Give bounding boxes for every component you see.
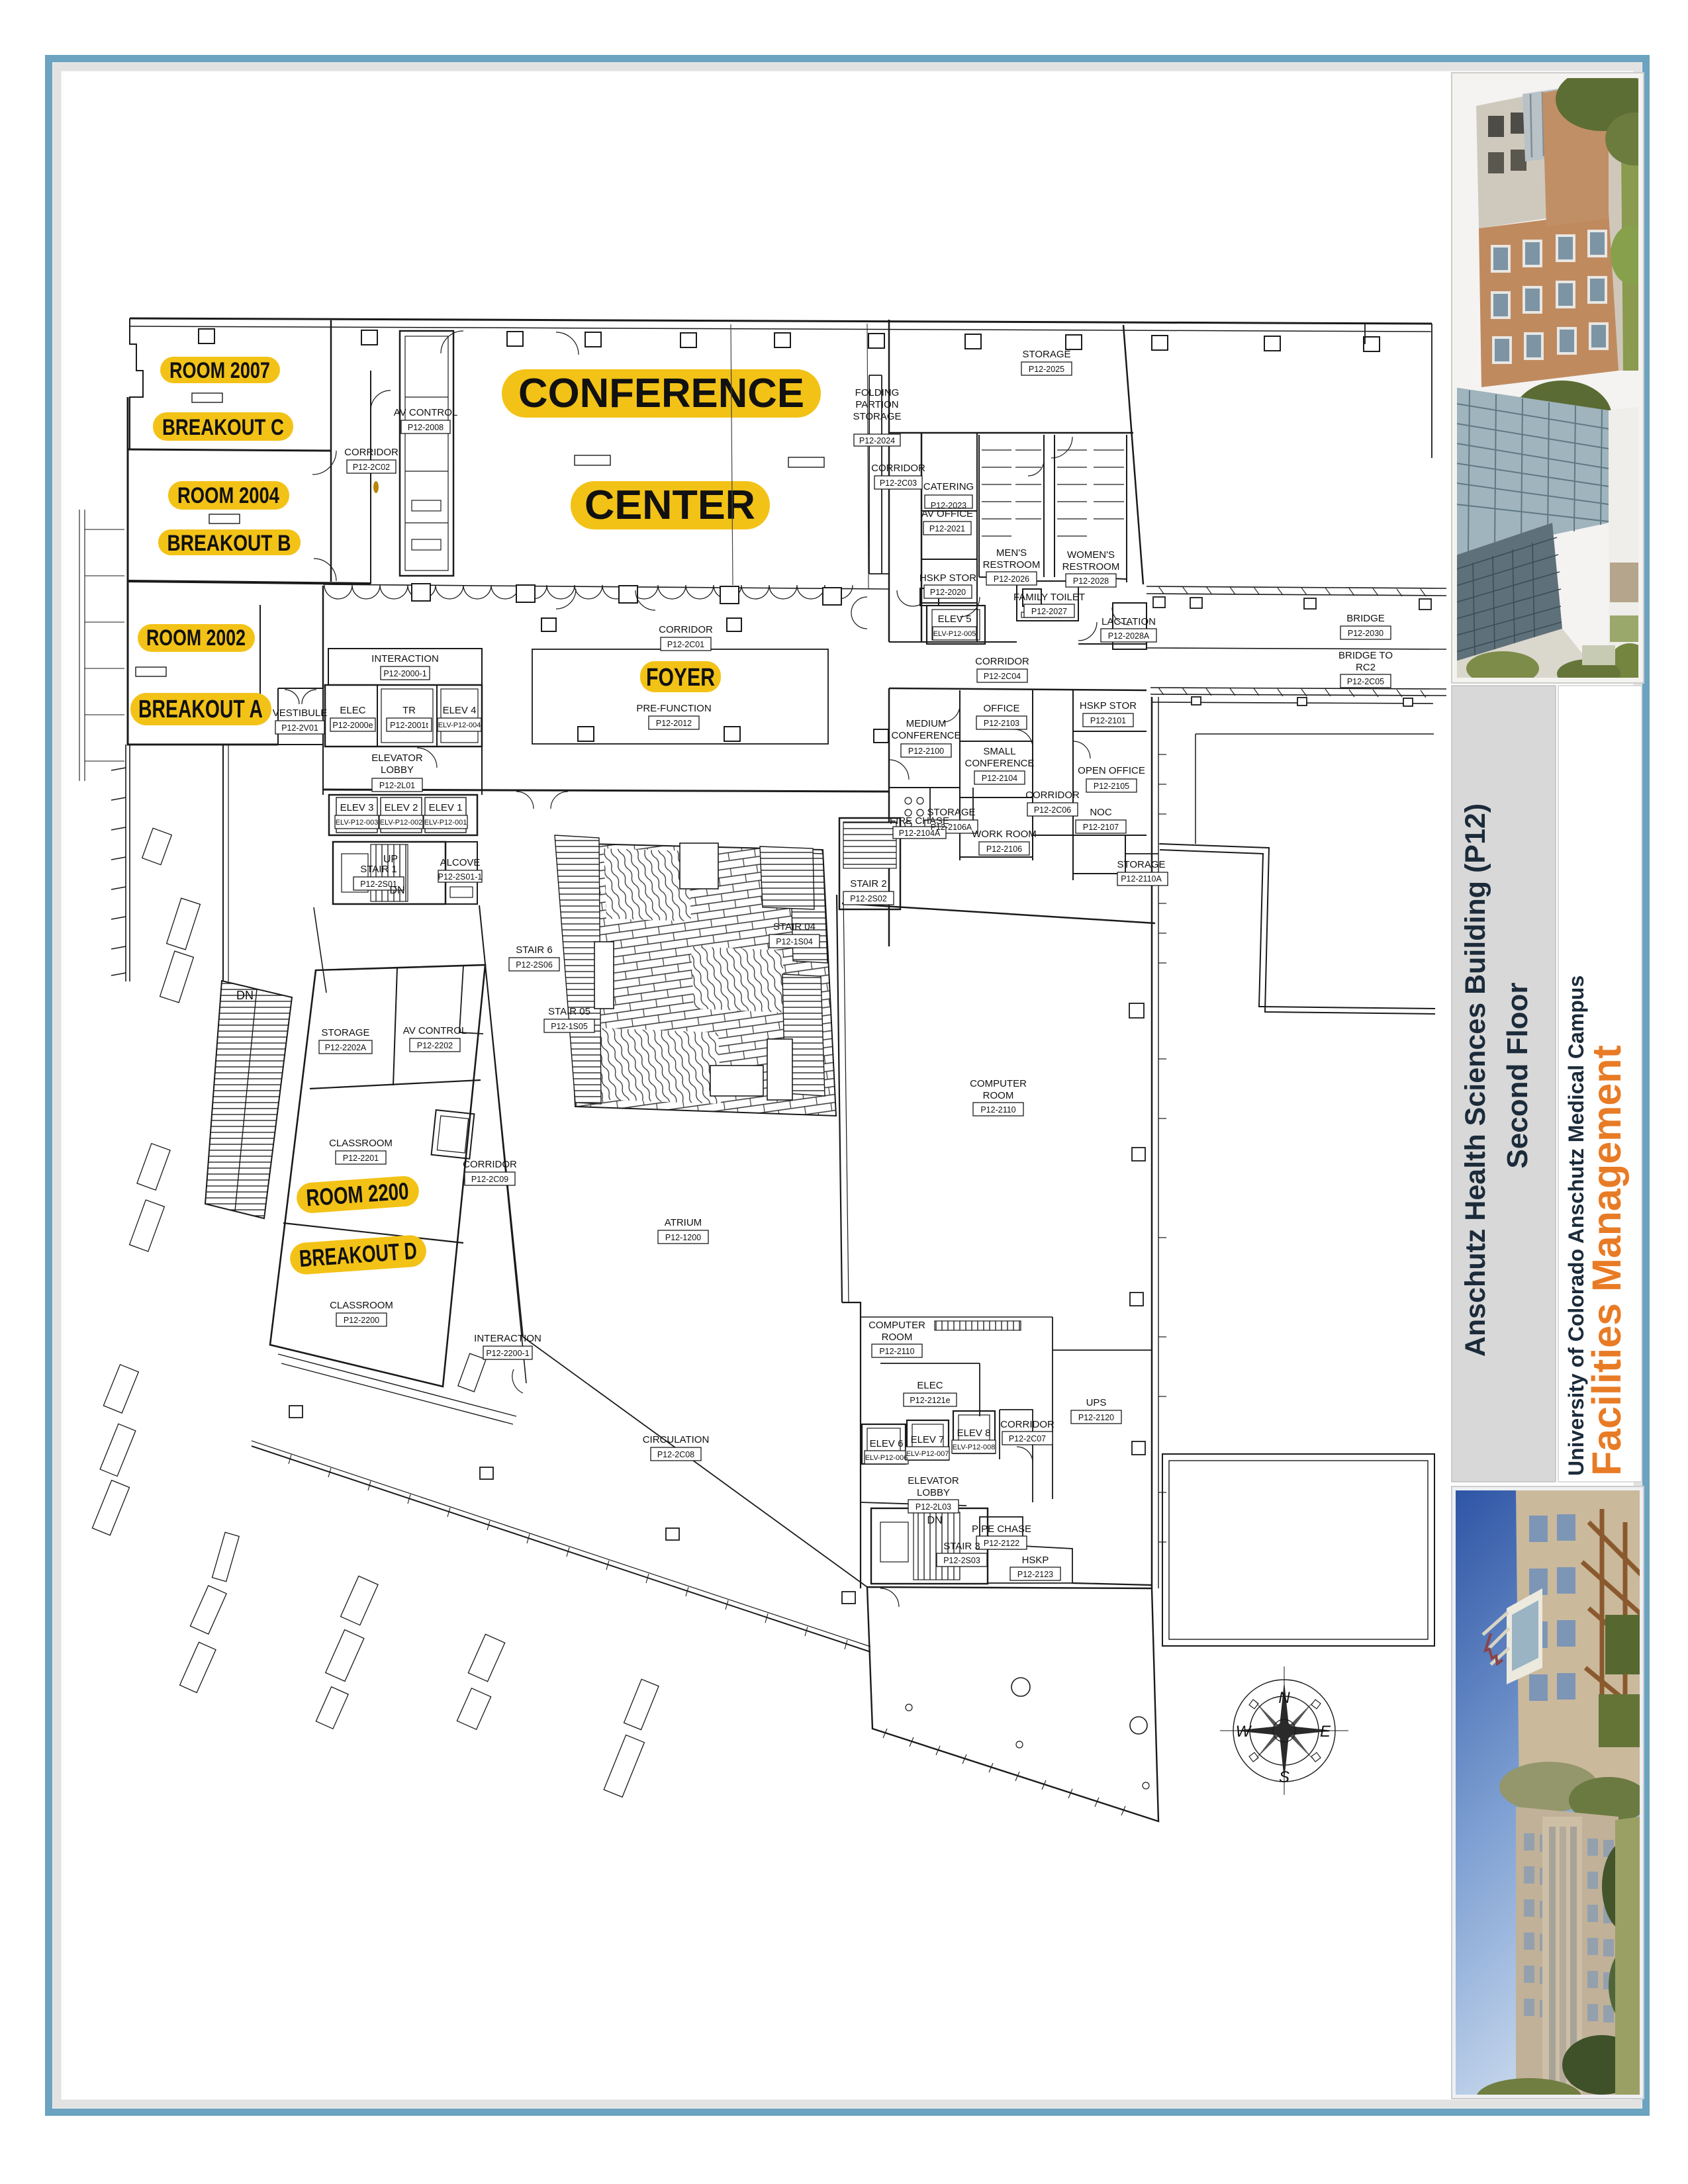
- svg-text:MEDIUM: MEDIUM: [906, 718, 947, 729]
- svg-text:PRE-FUNCTION: PRE-FUNCTION: [636, 703, 711, 714]
- svg-text:CORRIDOR: CORRIDOR: [463, 1159, 517, 1170]
- svg-text:ELEC: ELEC: [340, 705, 365, 716]
- svg-text:P12-2S01: P12-2S01: [360, 880, 397, 889]
- svg-text:CORRIDOR: CORRIDOR: [659, 624, 713, 635]
- svg-text:P12-2020: P12-2020: [930, 588, 966, 597]
- svg-text:LOBBY: LOBBY: [917, 1487, 950, 1498]
- svg-text:STAIR 1: STAIR 1: [360, 864, 397, 875]
- svg-text:ELEV 1: ELEV 1: [429, 802, 463, 813]
- svg-text:P12-2S06: P12-2S06: [516, 960, 553, 970]
- svg-text:P12-2106: P12-2106: [986, 844, 1022, 854]
- svg-text:BREAKOUT B: BREAKOUT B: [167, 531, 291, 556]
- svg-text:ELEV 5: ELEV 5: [938, 614, 972, 625]
- svg-text:P12-2104: P12-2104: [982, 774, 1017, 783]
- svg-text:HSKP: HSKP: [1022, 1555, 1049, 1566]
- svg-text:BRIDGE: BRIDGE: [1346, 613, 1385, 624]
- svg-text:OFFICE: OFFICE: [984, 703, 1020, 714]
- svg-text:CORRIDOR: CORRIDOR: [1000, 1419, 1055, 1430]
- svg-text:MEN'S: MEN'S: [996, 547, 1027, 559]
- svg-text:P12-2C04: P12-2C04: [984, 672, 1021, 681]
- svg-text:STAIR 05: STAIR 05: [548, 1006, 590, 1017]
- svg-text:P12-2L03: P12-2L03: [915, 1502, 951, 1512]
- svg-text:P12-2001t: P12-2001t: [390, 721, 428, 730]
- svg-text:OPEN OFFICE: OPEN OFFICE: [1078, 765, 1145, 776]
- svg-text:LOBBY: LOBBY: [381, 764, 414, 776]
- svg-text:HSKP STOR: HSKP STOR: [919, 572, 976, 584]
- svg-text:INTERACTION: INTERACTION: [371, 653, 439, 664]
- svg-text:CORRIDOR: CORRIDOR: [1025, 790, 1080, 801]
- svg-text:P12-2120: P12-2120: [1078, 1413, 1114, 1422]
- svg-text:CLASSROOM: CLASSROOM: [330, 1300, 393, 1311]
- svg-text:ALCOVE: ALCOVE: [440, 857, 481, 868]
- svg-text:Facilities Management: Facilities Management: [1584, 1045, 1629, 1476]
- svg-text:STORAGE: STORAGE: [1117, 859, 1165, 870]
- svg-text:P12-2C09: P12-2C09: [471, 1175, 508, 1184]
- svg-text:ELEVATOR: ELEVATOR: [908, 1475, 959, 1486]
- svg-text:ELEC: ELEC: [917, 1380, 943, 1391]
- svg-text:P12-1S05: P12-1S05: [551, 1022, 588, 1031]
- svg-text:P12-2C01: P12-2C01: [667, 640, 704, 649]
- svg-text:COMPUTER: COMPUTER: [868, 1320, 925, 1331]
- svg-text:P12-2107: P12-2107: [1083, 823, 1119, 832]
- svg-text:CORRIDOR: CORRIDOR: [871, 463, 925, 474]
- svg-text:P12-2S01-1: P12-2S01-1: [438, 872, 483, 882]
- svg-text:ATRIUM: ATRIUM: [665, 1217, 702, 1228]
- svg-text:ELV-P12-002: ELV-P12-002: [380, 819, 423, 827]
- svg-text:CENTER: CENTER: [585, 482, 755, 528]
- svg-text:CIRCULATION: CIRCULATION: [643, 1434, 710, 1445]
- svg-text:P12-2028A: P12-2028A: [1108, 631, 1150, 641]
- svg-text:P12-2027: P12-2027: [1031, 607, 1067, 616]
- svg-text:ELEV 4: ELEV 4: [443, 705, 477, 716]
- svg-text:P12-2L01: P12-2L01: [379, 781, 415, 790]
- svg-text:DN: DN: [236, 989, 254, 1002]
- svg-text:FOLDING: FOLDING: [855, 387, 900, 398]
- svg-text:P12-2202A: P12-2202A: [325, 1043, 367, 1052]
- svg-text:FOYER: FOYER: [646, 664, 715, 692]
- svg-text:AV CONTROL: AV CONTROL: [394, 407, 457, 418]
- svg-text:S: S: [1279, 1768, 1289, 1786]
- svg-text:ELV-P12-006: ELV-P12-006: [865, 1454, 908, 1462]
- svg-text:Second Floor: Second Floor: [1501, 982, 1534, 1168]
- svg-text:P12-2201: P12-2201: [343, 1154, 379, 1163]
- svg-text:P12-2100: P12-2100: [908, 747, 944, 756]
- svg-text:CORRIDOR: CORRIDOR: [975, 656, 1029, 667]
- svg-text:ELEV 2: ELEV 2: [385, 802, 418, 813]
- svg-text:CONFERENCE: CONFERENCE: [891, 730, 961, 741]
- svg-text:P12-2023: P12-2023: [931, 501, 966, 510]
- svg-text:TR: TR: [402, 705, 416, 716]
- svg-text:P12-2101: P12-2101: [1090, 716, 1126, 725]
- svg-text:WORK ROOM: WORK ROOM: [972, 829, 1037, 840]
- svg-text:P12-2028: P12-2028: [1073, 576, 1109, 586]
- svg-text:ROOM 2004: ROOM 2004: [177, 483, 279, 508]
- svg-text:ELEV 3: ELEV 3: [340, 802, 374, 813]
- svg-text:BREAKOUT C: BREAKOUT C: [162, 415, 284, 440]
- svg-text:PARTION: PARTION: [855, 399, 898, 410]
- svg-text:ROOM: ROOM: [983, 1090, 1014, 1101]
- svg-text:ELV-P12-001: ELV-P12-001: [424, 819, 467, 827]
- svg-text:NOC: NOC: [1090, 807, 1112, 818]
- svg-text:CATERING: CATERING: [923, 481, 974, 492]
- svg-text:STORAGE: STORAGE: [1022, 349, 1070, 360]
- svg-text:CONFERENCE: CONFERENCE: [518, 371, 804, 416]
- svg-text:P12-2C05: P12-2C05: [1347, 677, 1384, 686]
- svg-text:VESTIBULE: VESTIBULE: [273, 707, 328, 719]
- svg-text:P12-2123: P12-2123: [1017, 1570, 1053, 1579]
- svg-text:RESTROOM: RESTROOM: [1062, 561, 1120, 572]
- svg-text:ELV-P12-005: ELV-P12-005: [933, 630, 976, 638]
- svg-text:P12-2110: P12-2110: [879, 1347, 914, 1356]
- svg-text:COMPUTER: COMPUTER: [970, 1078, 1027, 1089]
- svg-text:P12-2S02: P12-2S02: [850, 894, 887, 903]
- svg-text:P12-2C03: P12-2C03: [880, 478, 917, 488]
- svg-text:P12-2026: P12-2026: [994, 574, 1029, 584]
- svg-text:P12-2110: P12-2110: [980, 1105, 1015, 1115]
- svg-text:N: N: [1278, 1689, 1290, 1707]
- svg-text:P12-2C07: P12-2C07: [1009, 1434, 1046, 1443]
- svg-text:STAIR 6: STAIR 6: [516, 944, 553, 956]
- svg-text:P12-2105: P12-2105: [1094, 782, 1129, 791]
- svg-text:P12-2122: P12-2122: [984, 1539, 1019, 1548]
- svg-text:P12-2V01: P12-2V01: [281, 723, 318, 733]
- svg-text:ELV-P12-008: ELV-P12-008: [953, 1443, 996, 1451]
- svg-text:DN: DN: [927, 1515, 942, 1526]
- svg-text:P12-2021: P12-2021: [929, 524, 965, 533]
- svg-text:P12-2030: P12-2030: [1348, 629, 1383, 638]
- svg-text:BRIDGE TO: BRIDGE TO: [1338, 650, 1393, 661]
- svg-text:P12-2104A: P12-2104A: [899, 829, 941, 838]
- svg-text:CONFERENCE: CONFERENCE: [964, 758, 1034, 769]
- svg-text:P12-2200-1: P12-2200-1: [486, 1349, 529, 1358]
- svg-text:P12-2000-1: P12-2000-1: [383, 669, 426, 678]
- svg-text:BREAKOUT A: BREAKOUT A: [138, 696, 263, 723]
- svg-text:P12-2000e: P12-2000e: [332, 721, 373, 730]
- svg-text:ELEV 8: ELEV 8: [957, 1428, 991, 1439]
- svg-text:FAMILY TOILET: FAMILY TOILET: [1013, 592, 1085, 603]
- svg-text:P12-1S04: P12-1S04: [776, 937, 813, 946]
- svg-text:ROOM: ROOM: [882, 1332, 913, 1343]
- svg-text:P12-2024: P12-2024: [859, 436, 895, 445]
- svg-text:ROOM 2002: ROOM 2002: [146, 625, 246, 651]
- svg-text:Anschutz Health Sciences Build: Anschutz Health Sciences Building (P12): [1460, 803, 1491, 1357]
- svg-text:STORAGE: STORAGE: [853, 411, 901, 422]
- svg-text:P12-2025: P12-2025: [1029, 365, 1064, 374]
- svg-text:AV CONTROL: AV CONTROL: [403, 1025, 467, 1036]
- svg-text:ELV-P12-004: ELV-P12-004: [438, 721, 481, 729]
- svg-text:STAIR 3: STAIR 3: [943, 1541, 980, 1552]
- svg-text:P12-2C06: P12-2C06: [1034, 805, 1071, 815]
- svg-text:SMALL: SMALL: [983, 746, 1015, 757]
- svg-text:UPS: UPS: [1086, 1397, 1107, 1408]
- svg-text:P12-2C02: P12-2C02: [353, 463, 390, 472]
- svg-text:P12-2008: P12-2008: [408, 423, 444, 432]
- svg-text:P12-2121e: P12-2121e: [910, 1396, 950, 1405]
- svg-text:UP: UP: [383, 854, 398, 865]
- svg-text:W: W: [1236, 1723, 1252, 1741]
- svg-text:E: E: [1320, 1723, 1331, 1741]
- svg-text:WOMEN'S: WOMEN'S: [1067, 549, 1115, 561]
- svg-text:HSKP STOR: HSKP STOR: [1080, 700, 1137, 711]
- svg-text:ROOM 2007: ROOM 2007: [169, 358, 270, 383]
- svg-text:PIPE CHASE: PIPE CHASE: [972, 1524, 1031, 1535]
- svg-text:STAIR 04: STAIR 04: [773, 921, 816, 933]
- svg-text:P12-1200: P12-1200: [665, 1233, 701, 1242]
- svg-text:INTERACTION: INTERACTION: [474, 1333, 541, 1344]
- svg-text:STORAGE: STORAGE: [321, 1027, 369, 1038]
- svg-text:P12-2200: P12-2200: [344, 1316, 379, 1325]
- svg-text:P12-2S03: P12-2S03: [943, 1556, 980, 1565]
- svg-text:CORRIDOR: CORRIDOR: [344, 447, 399, 458]
- svg-text:STAIR 2: STAIR 2: [850, 878, 887, 889]
- svg-text:ELEV 7: ELEV 7: [911, 1434, 945, 1445]
- svg-text:ELV-P12-003: ELV-P12-003: [336, 819, 379, 827]
- svg-text:RC2: RC2: [1356, 662, 1376, 673]
- svg-text:ELV-P12-007: ELV-P12-007: [906, 1450, 949, 1458]
- svg-text:RESTROOM: RESTROOM: [983, 559, 1041, 570]
- svg-text:ELEVATOR: ELEVATOR: [371, 752, 423, 764]
- svg-text:P12-2202: P12-2202: [417, 1041, 453, 1050]
- svg-text:LACTATION: LACTATION: [1102, 616, 1156, 627]
- svg-text:CLASSROOM: CLASSROOM: [329, 1138, 393, 1149]
- svg-text:P12-2103: P12-2103: [984, 719, 1019, 728]
- svg-text:P12-2110A: P12-2110A: [1121, 874, 1162, 884]
- svg-text:P12-2012: P12-2012: [656, 719, 692, 728]
- svg-text:P12-2C08: P12-2C08: [657, 1450, 694, 1459]
- svg-text:ELEV 6: ELEV 6: [870, 1438, 904, 1449]
